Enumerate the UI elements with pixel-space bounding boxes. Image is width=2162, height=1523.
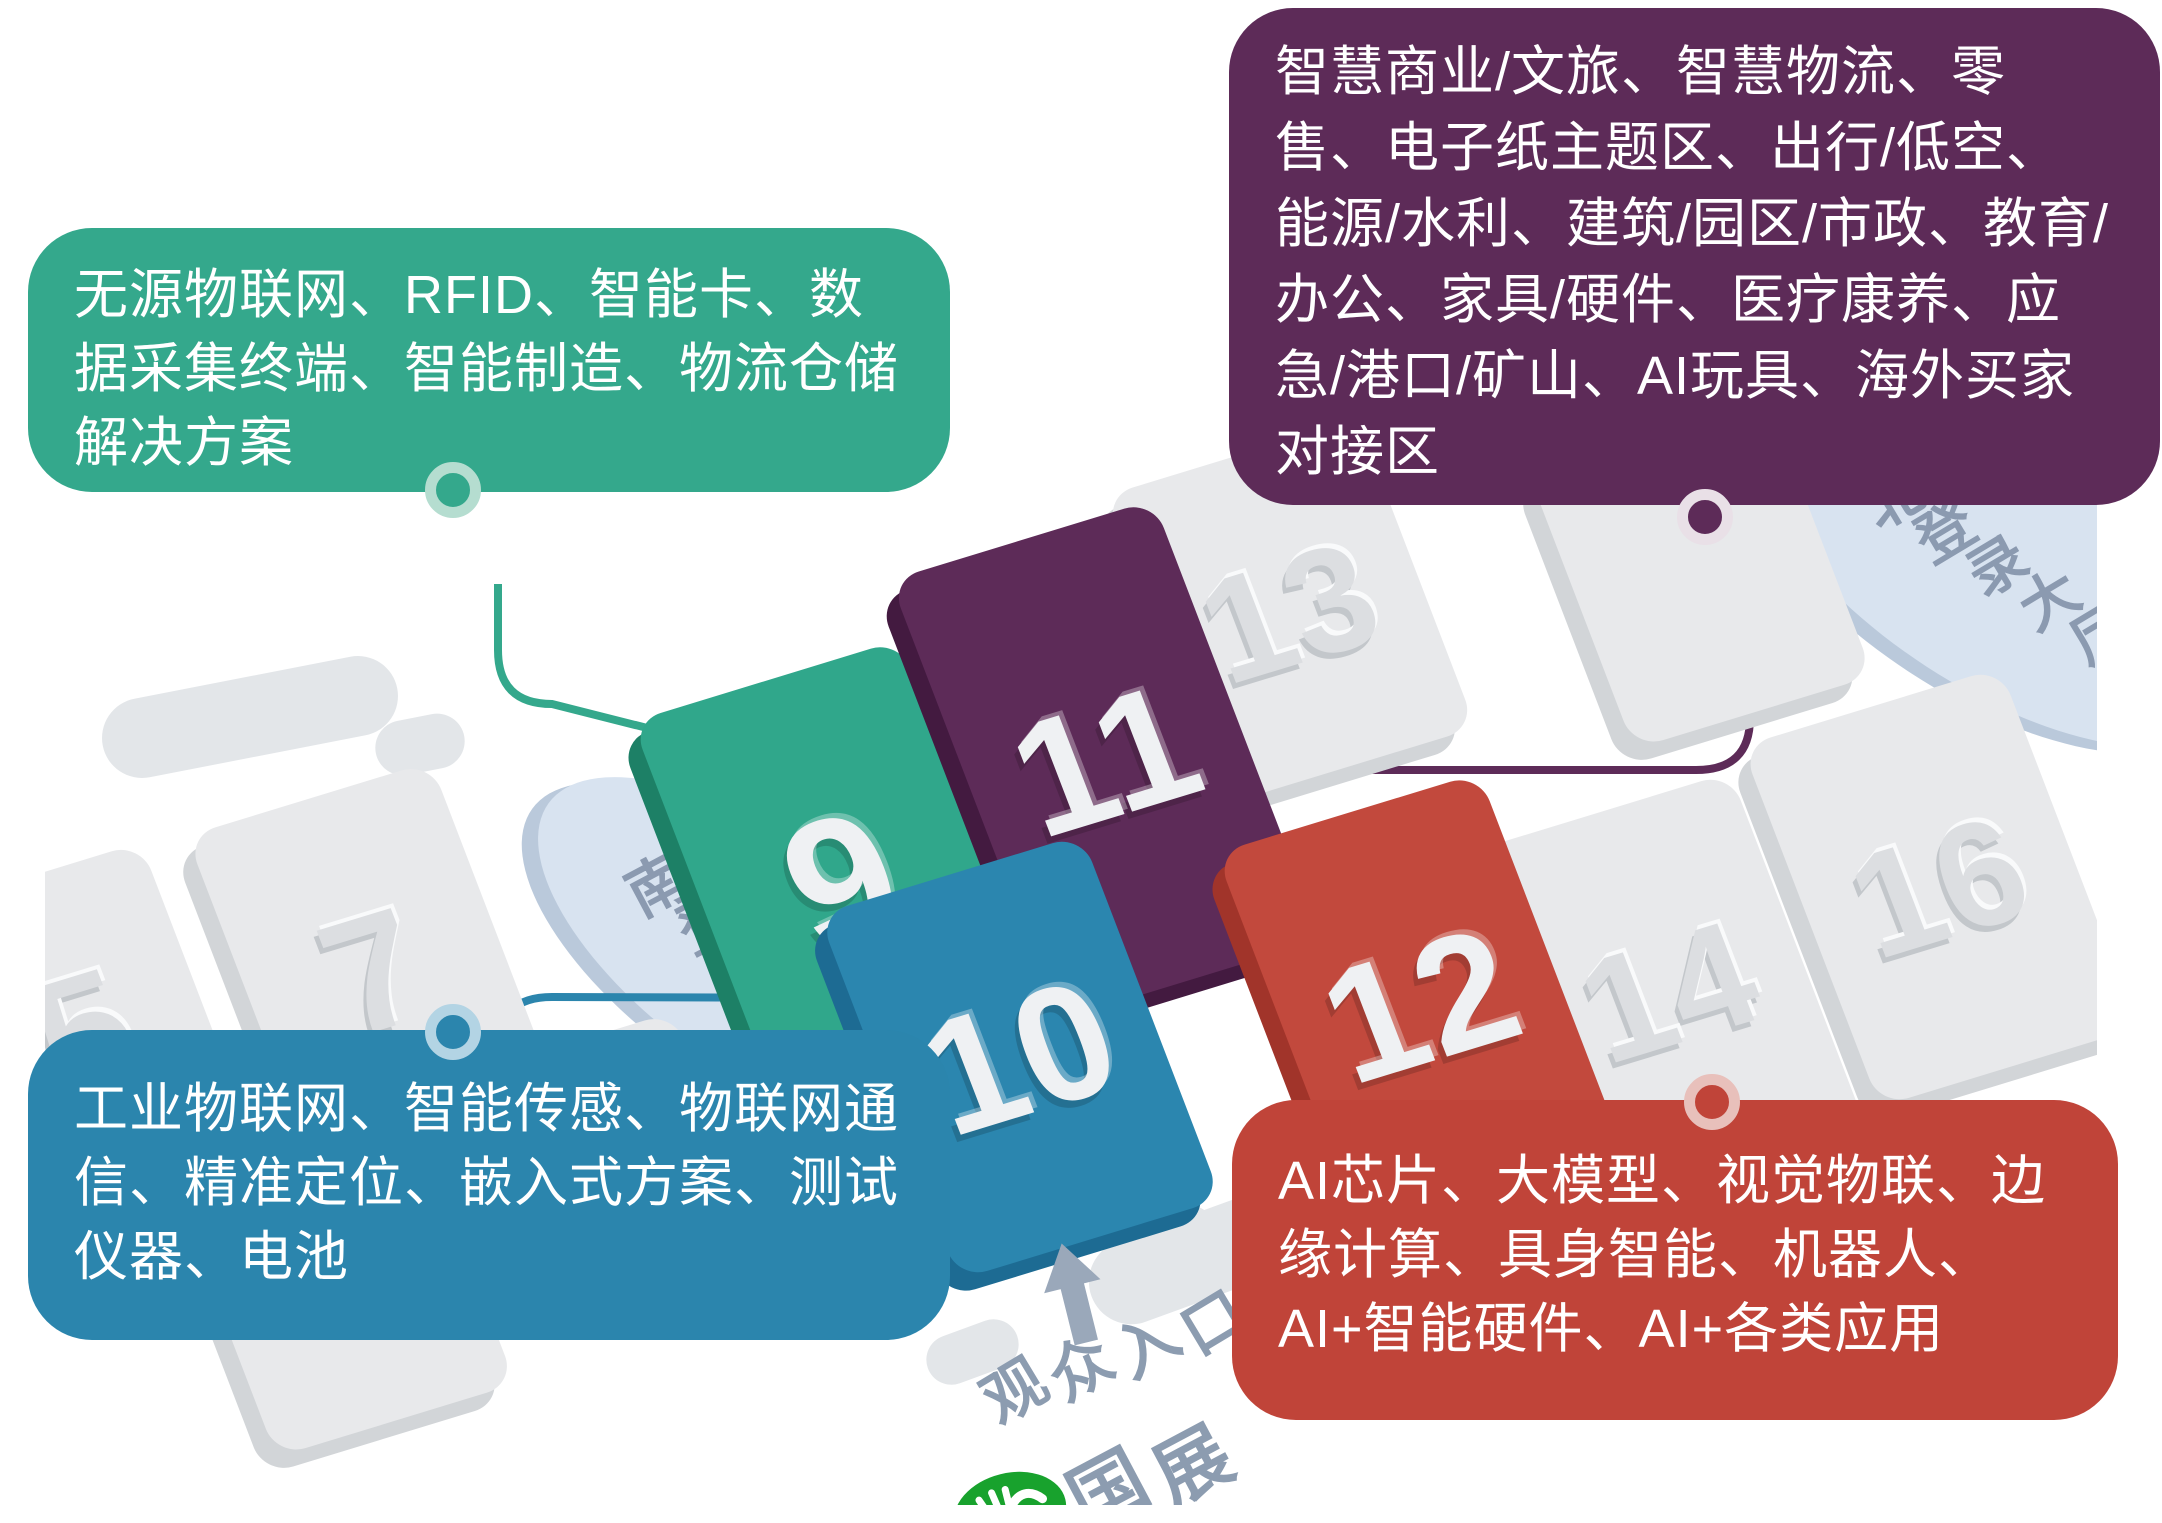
hall9-callout: 无源物联网、RFID、智能卡、数据采集终端、智能制造、物流仓储解决方案	[28, 228, 950, 492]
hall-11-number: 11	[987, 645, 1226, 874]
hall10-callout: 工业物联网、智能传感、物联网通信、精准定位、嵌入式方案、测试仪器、电池	[28, 1030, 950, 1340]
hall11-callout: 智慧商业/文旅、智慧物流、零售、电子纸主题区、出行/低空、能源/水利、建筑/园区…	[1229, 8, 2160, 505]
hall10-callout-text: 工业物联网、智能传感、物联网通信、精准定位、嵌入式方案、测试仪器、电池	[74, 1079, 899, 1287]
hall12-callout: AI芯片、大模型、视觉物联、边缘计算、具身智能、机器人、AI+智能硬件、AI+各…	[1232, 1100, 2118, 1420]
hall12-connector-dot	[1684, 1074, 1740, 1130]
hall9-callout-text: 无源物联网、RFID、智能卡、数据采集终端、智能制造、物流仓储解决方案	[74, 265, 899, 473]
hall10-connector-dot	[425, 1004, 481, 1060]
exhibition-map: 南登录大厅 北登录大厅 5 7 13 14 16 9 11 10 12 观众入	[0, 0, 2162, 1523]
hall11-callout-text: 智慧商业/文旅、智慧物流、零售、电子纸主题区、出行/低空、能源/水利、建筑/园区…	[1275, 42, 2109, 482]
hall9-connector-dot	[425, 462, 481, 518]
hall-16-number: 16	[1827, 781, 2053, 993]
hall-12-number: 12	[1297, 889, 1544, 1121]
hall12-callout-text: AI芯片、大模型、视觉物联、边缘计算、具身智能、机器人、AI+智能硬件、AI+各…	[1278, 1151, 2046, 1359]
hall11-connector-dot	[1677, 489, 1733, 545]
